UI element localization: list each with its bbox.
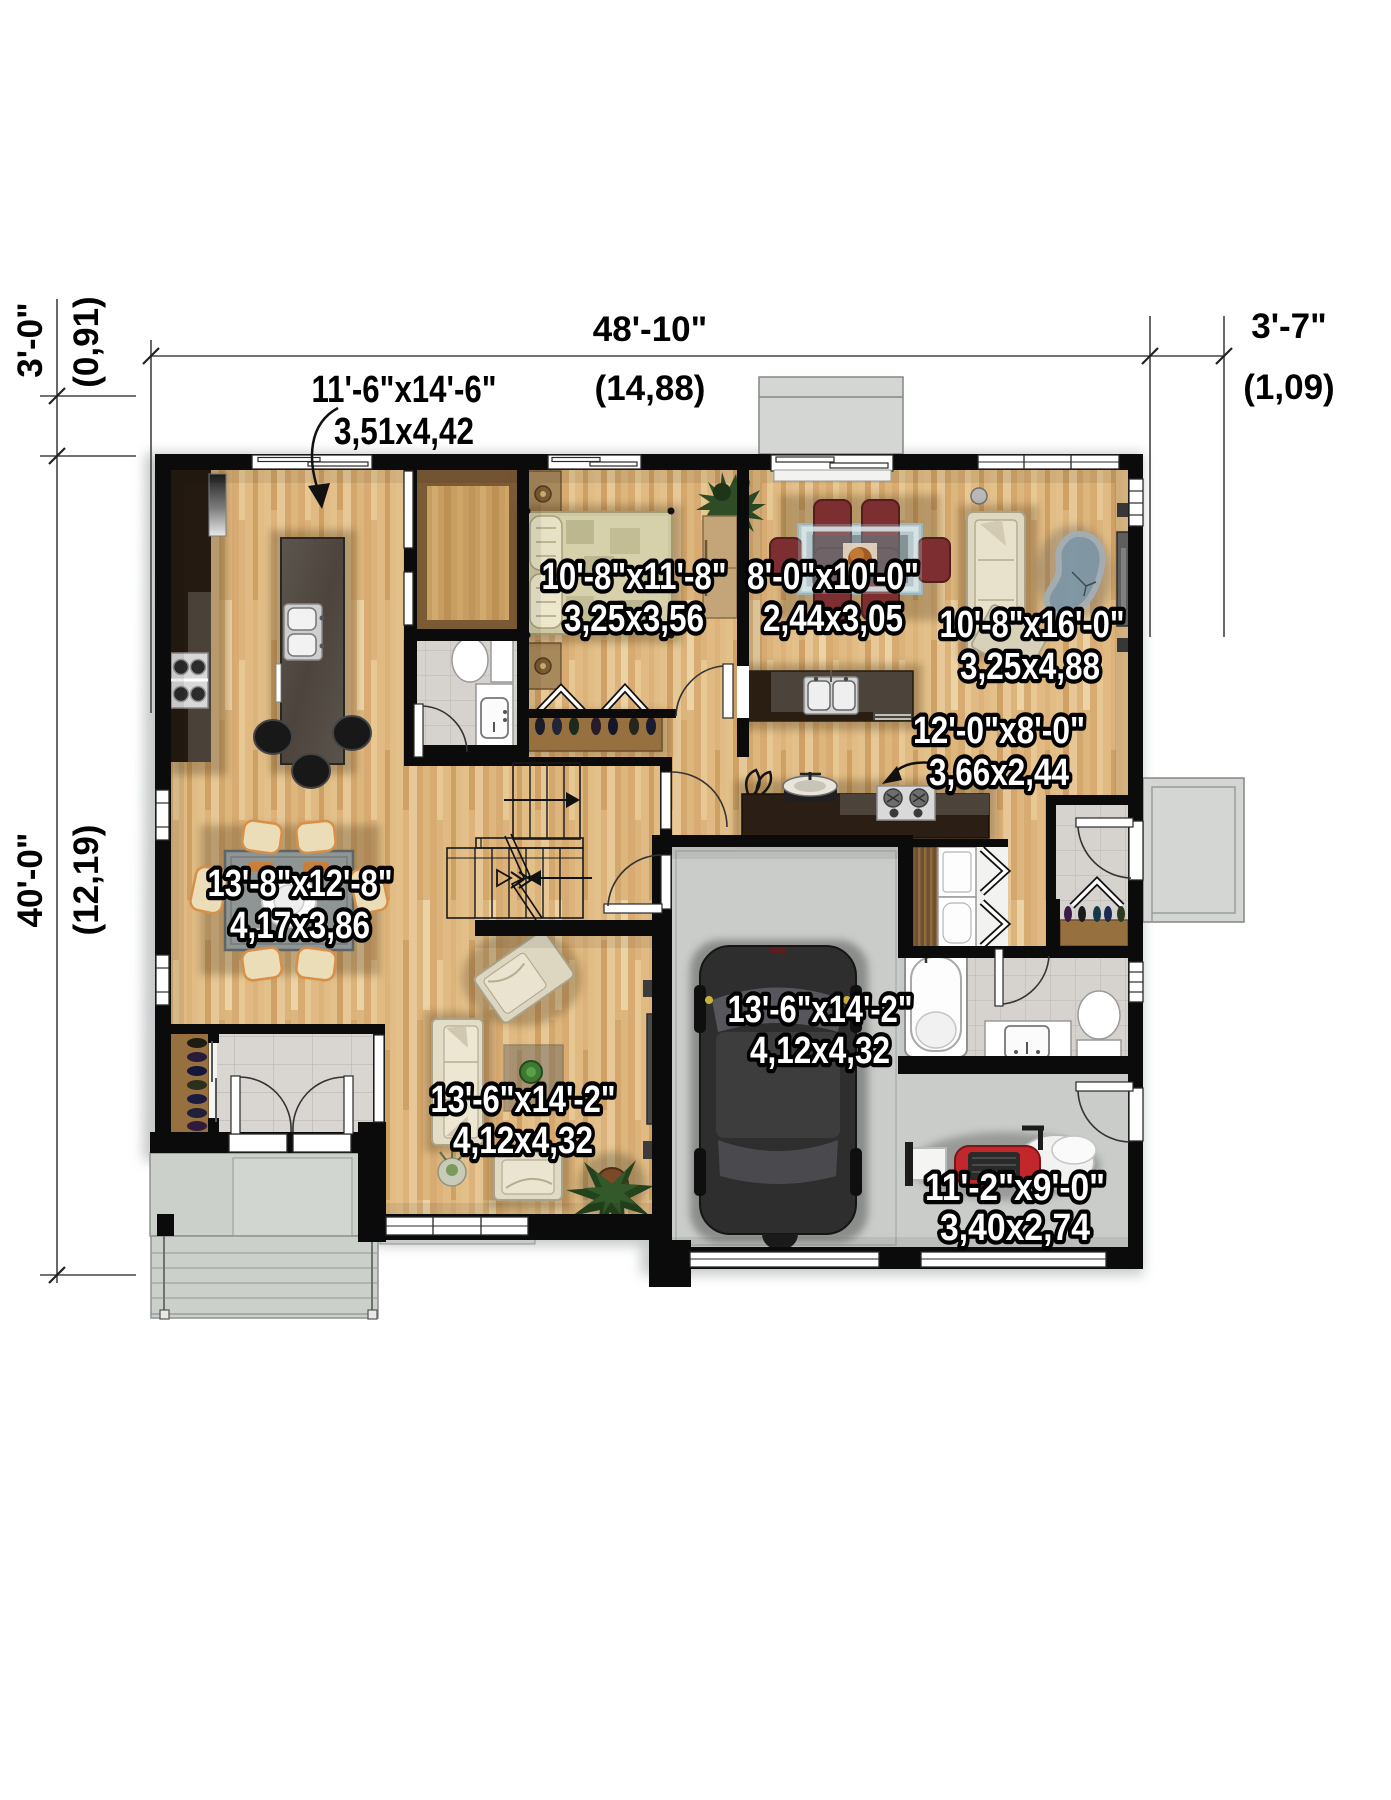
svg-text:10'-8"x16'-0": 10'-8"x16'-0" <box>940 604 1125 646</box>
svg-text:3'-0": 3'-0" <box>11 302 50 378</box>
svg-text:4,17x3,86: 4,17x3,86 <box>230 905 370 947</box>
svg-text:8'-0"x10'-0": 8'-0"x10'-0" <box>747 556 919 598</box>
svg-text:12'-0"x8'-0": 12'-0"x8'-0" <box>913 710 1085 752</box>
svg-text:(12,19): (12,19) <box>67 825 106 936</box>
svg-text:4,12x4,32: 4,12x4,32 <box>453 1120 593 1162</box>
svg-text:(0,91): (0,91) <box>67 296 106 387</box>
svg-text:13'-8"x12'-8": 13'-8"x12'-8" <box>208 863 393 905</box>
svg-text:3,25x3,56: 3,25x3,56 <box>564 598 704 640</box>
svg-text:(14,88): (14,88) <box>595 369 706 408</box>
svg-text:3'-7": 3'-7" <box>1251 307 1327 346</box>
svg-text:3,40x2,74: 3,40x2,74 <box>940 1207 1090 1249</box>
svg-text:48'-10": 48'-10" <box>593 310 707 349</box>
svg-text:13'-6"x14'-2": 13'-6"x14'-2" <box>431 1079 616 1121</box>
svg-text:10'-8"x11'-8": 10'-8"x11'-8" <box>542 556 727 598</box>
svg-text:11'-2"x9'-0": 11'-2"x9'-0" <box>925 1167 1105 1209</box>
svg-text:3,66x2,44: 3,66x2,44 <box>929 752 1069 794</box>
svg-text:4,12x4,32: 4,12x4,32 <box>750 1030 890 1072</box>
svg-text:(1,09): (1,09) <box>1243 368 1334 407</box>
svg-text:2,44x3,05: 2,44x3,05 <box>763 598 903 640</box>
svg-text:11'-6"x14'-6": 11'-6"x14'-6" <box>312 369 497 411</box>
svg-text:40'-0": 40'-0" <box>11 833 50 928</box>
svg-text:13'-6"x14'-2": 13'-6"x14'-2" <box>728 989 913 1031</box>
svg-text:3,51x4,42: 3,51x4,42 <box>334 411 474 453</box>
svg-text:3,25x4,88: 3,25x4,88 <box>960 646 1100 688</box>
